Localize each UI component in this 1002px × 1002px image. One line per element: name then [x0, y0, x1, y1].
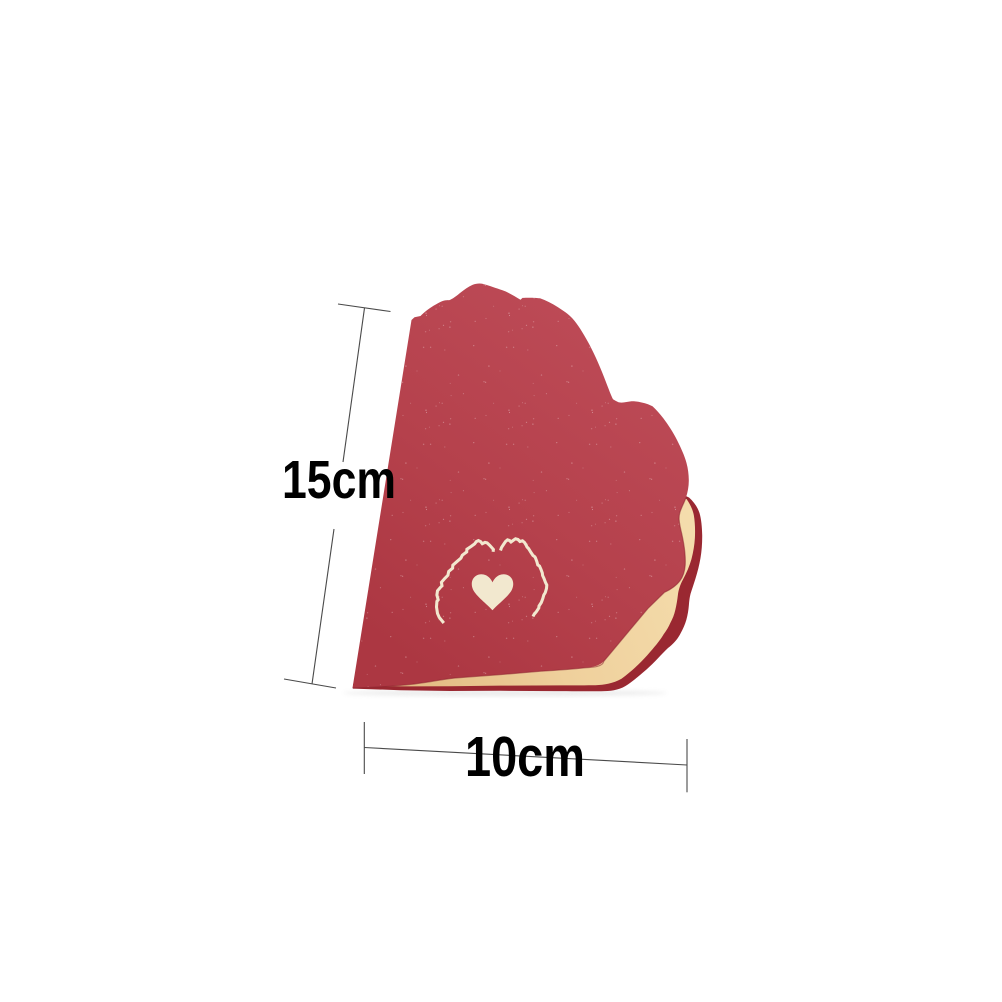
svg-text:15cm: 15cm — [282, 450, 396, 510]
svg-text:10cm: 10cm — [465, 725, 585, 789]
